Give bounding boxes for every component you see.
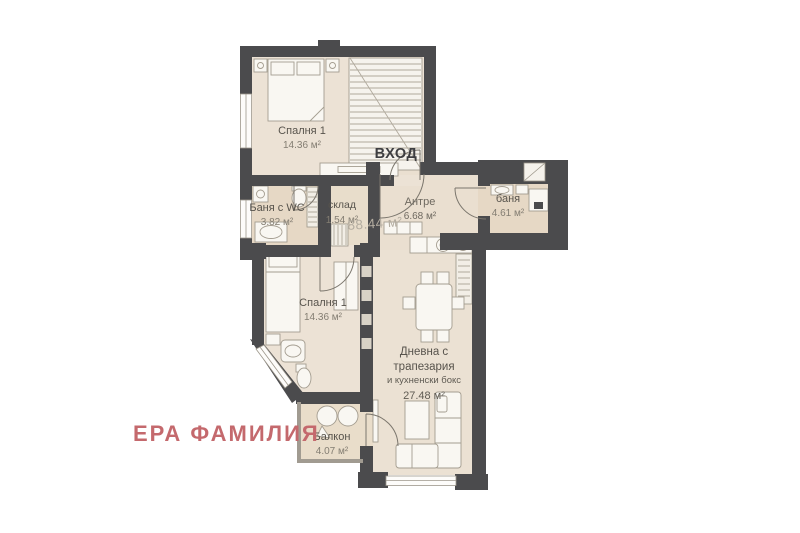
room-name: Баня с WC xyxy=(249,201,304,215)
sklad-shelf xyxy=(331,224,348,246)
room-area: 14.36 м² xyxy=(299,311,347,324)
room-area: 14.36 м² xyxy=(278,139,326,152)
room-area: 3.82 м² xyxy=(249,216,304,229)
room-name: склад xyxy=(326,199,358,213)
room-name-line1: Дневна с xyxy=(387,345,461,360)
room-label-living: Дневна с трапезария и кухненски бокс 27.… xyxy=(387,345,461,404)
shaft-niche xyxy=(524,163,545,181)
room-area: 6.68 м² xyxy=(404,210,436,223)
room-area: 4.61 м² xyxy=(492,207,524,220)
room-label-bedroom1: Спалня 1 14.36 м² xyxy=(278,124,326,152)
room-name: баня xyxy=(492,192,524,206)
room-name: Антре xyxy=(404,195,436,209)
room-label-antre: Антре 6.68 м² xyxy=(404,195,436,223)
room-label-bedroom2: Спалня 1 14.36 м² xyxy=(299,296,347,324)
coffee-table xyxy=(405,401,429,439)
room-label-banya: баня 4.61 м² xyxy=(492,192,524,220)
room-name-line3: и кухненски бокс xyxy=(387,375,461,387)
entrance-label: ВХОД xyxy=(375,146,418,162)
room-name-line2: трапезария xyxy=(387,360,461,375)
tv-stand xyxy=(373,400,378,442)
room-name: Спалня 1 xyxy=(278,124,326,138)
dresser-bedroom1 xyxy=(320,163,398,176)
agency-watermark: ЕРА ФАМИЛИЯ xyxy=(133,421,320,447)
room-area: 4.07 м² xyxy=(314,445,351,458)
room-label-banya-wc: Баня с WC 3.82 м² xyxy=(249,201,304,229)
floor-plan-drawing xyxy=(0,0,800,533)
floor-plan-page: ВХОД Спалня 1 14.36 м² Баня с WC 3.82 м²… xyxy=(0,0,800,533)
room-area: 27.48 м² xyxy=(387,389,461,403)
room-name: Спалня 1 xyxy=(299,296,347,310)
